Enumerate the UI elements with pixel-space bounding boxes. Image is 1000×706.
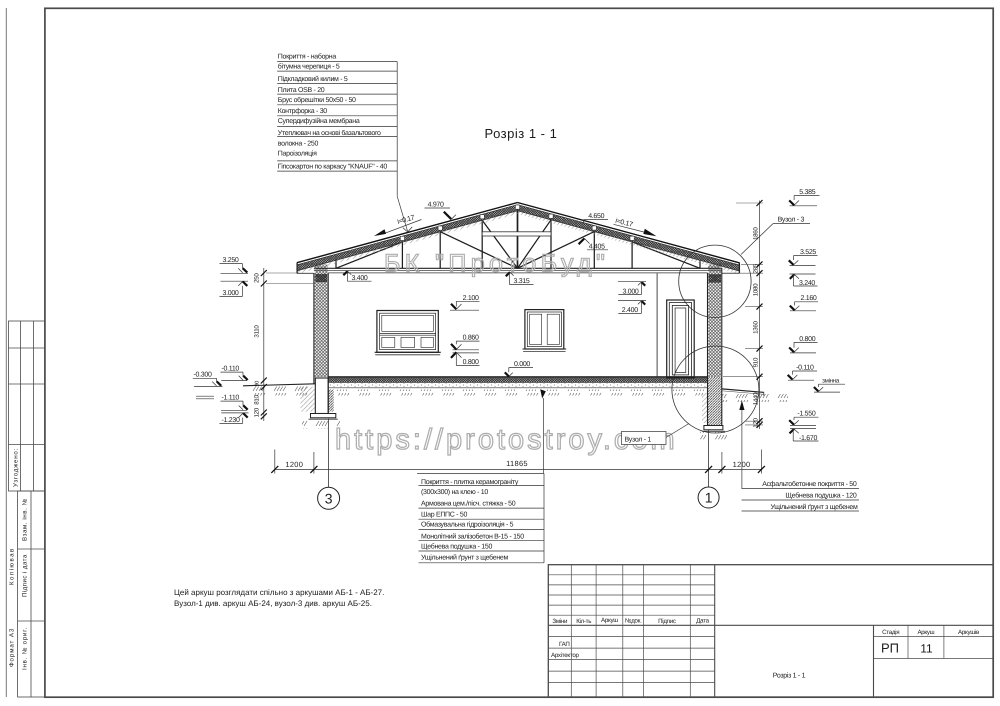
- svg-text:Утеплювач на основі базальтово: Утеплювач на основі базальтового: [278, 129, 381, 137]
- svg-text:Вузол - 3: Вузол - 3: [778, 216, 805, 223]
- svg-text:-1.230: -1.230: [222, 417, 240, 424]
- svg-text:Гіпсокартон по каркасу "KNAUF": Гіпсокартон по каркасу "KNAUF" - 40: [278, 162, 388, 170]
- svg-text:волокна - 250: волокна - 250: [278, 140, 319, 147]
- svg-text:1860: 1860: [753, 227, 760, 240]
- svg-text:Взам. інв. №: Взам. інв. №: [22, 498, 29, 541]
- svg-text:-0.110: -0.110: [222, 366, 240, 373]
- svg-text:3.000: 3.000: [223, 290, 239, 297]
- svg-text:90: 90: [254, 381, 260, 387]
- svg-text:120: 120: [253, 407, 260, 417]
- svg-text:3.250: 3.250: [223, 257, 239, 264]
- svg-text:120: 120: [753, 417, 760, 427]
- svg-text:Щебнева подушка - 150: Щебнева подушка - 150: [421, 543, 492, 551]
- svg-text:Узгоджено:: Узгоджено:: [13, 448, 20, 487]
- svg-text:3110: 3110: [253, 325, 260, 338]
- svg-text:4.650: 4.650: [588, 213, 604, 220]
- svg-text:Інв. № ориг.: Інв. № ориг.: [22, 627, 29, 670]
- svg-text:Формат А3: Формат А3: [9, 628, 16, 667]
- svg-text:3.000: 3.000: [623, 288, 639, 295]
- svg-text:Аркуш: Аркуш: [917, 629, 934, 636]
- svg-text:Покриття - плитка керамограніт: Покриття - плитка керамограніту: [421, 478, 519, 486]
- svg-text:Плита OSB - 20: Плита OSB - 20: [278, 87, 325, 94]
- svg-text:1360: 1360: [753, 320, 760, 333]
- svg-text:Армована цем./пісч. стяжка - 5: Армована цем./пісч. стяжка - 50: [421, 499, 516, 507]
- svg-text:Дата: Дата: [696, 617, 709, 624]
- svg-text:285: 285: [753, 263, 760, 273]
- svg-text:5.385: 5.385: [799, 189, 815, 196]
- svg-text:2.160: 2.160: [801, 295, 817, 302]
- svg-text:Архітектор: Архітектор: [551, 652, 579, 659]
- svg-text:№док.: №док.: [625, 617, 642, 624]
- svg-text:0.800: 0.800: [463, 359, 479, 366]
- svg-text:1080: 1080: [753, 283, 760, 296]
- svg-text:Покриття - наборна: Покриття - наборна: [278, 53, 337, 61]
- svg-text:Розріз 1 - 1: Розріз 1 - 1: [485, 126, 558, 141]
- svg-text:Обмазувальна гідроізоляція - 5: Обмазувальна гідроізоляція - 5: [421, 521, 514, 529]
- svg-text:2.400: 2.400: [622, 307, 638, 314]
- svg-text:Пароізоляція: Пароізоляція: [278, 149, 317, 157]
- svg-text:Щебнева подушка - 120: Щебнева подушка - 120: [785, 492, 856, 500]
- svg-text:Зміни: Зміни: [552, 618, 568, 625]
- svg-text:Ущільнений ґрунт з щебенем: Ущільнений ґрунт з щебенем: [421, 554, 509, 562]
- svg-text:1200: 1200: [285, 460, 303, 469]
- svg-text:4.405: 4.405: [589, 243, 605, 250]
- svg-text:11: 11: [920, 642, 933, 656]
- svg-text:-0.300: -0.300: [194, 372, 212, 379]
- svg-text:змінна: змінна: [822, 378, 840, 385]
- svg-text:11865: 11865: [506, 459, 528, 468]
- svg-text:ГАП: ГАП: [559, 641, 570, 648]
- svg-text:Контрфорка - 30: Контрфорка - 30: [278, 107, 328, 115]
- svg-text:3.525: 3.525: [800, 249, 816, 256]
- svg-text:Ущільнений ґрунт з щебенем: Ущільнений ґрунт з щебенем: [770, 503, 858, 511]
- svg-text:-1.110: -1.110: [222, 395, 240, 402]
- svg-text:Розріз 1 - 1: Розріз 1 - 1: [773, 672, 806, 680]
- svg-text:0.800: 0.800: [799, 336, 815, 343]
- svg-text:910: 910: [753, 357, 760, 367]
- svg-text:4.970: 4.970: [428, 201, 444, 208]
- svg-text:3.400: 3.400: [352, 275, 368, 282]
- svg-text:БК "ПротоБуд": БК "ПротоБуд": [384, 250, 609, 278]
- svg-text:Асфальтобетонне покриття - 50: Асфальтобетонне покриття - 50: [762, 480, 857, 488]
- svg-text:-1.670: -1.670: [799, 435, 817, 442]
- svg-text:-1.550: -1.550: [797, 411, 815, 418]
- svg-text:1: 1: [705, 490, 713, 506]
- svg-text:Кіл-ть: Кіл-ть: [576, 618, 591, 625]
- svg-text:Вузол-1 див. аркуш АБ-24, вузо: Вузол-1 див. аркуш АБ-24, вузол-3 див. а…: [174, 599, 372, 608]
- svg-text:3.315: 3.315: [514, 278, 530, 285]
- svg-text:0.860: 0.860: [463, 335, 479, 342]
- svg-text:Брус обрешітки 50х50 - 50: Брус обрешітки 50х50 - 50: [278, 96, 356, 104]
- svg-text:Підпис: Підпис: [658, 618, 676, 625]
- svg-text:Стадія: Стадія: [882, 629, 899, 636]
- svg-text:Шар ЕППС - 50: Шар ЕППС - 50: [421, 512, 467, 519]
- svg-text:Аркуш: Аркуш: [601, 617, 618, 624]
- svg-text:РП: РП: [881, 641, 899, 656]
- svg-text:0.000: 0.000: [514, 361, 530, 368]
- svg-text:Супердифузійна мембрана: Супердифузійна мембрана: [278, 117, 360, 125]
- svg-text:1440: 1440: [753, 392, 760, 405]
- svg-text:Цей аркуш розглядати спільно з: Цей аркуш розглядати спільно з аркушами …: [174, 588, 384, 597]
- svg-text:250: 250: [253, 273, 260, 283]
- svg-text:-0.110: -0.110: [796, 365, 814, 372]
- svg-text:Підпис і дата: Підпис і дата: [22, 554, 29, 597]
- svg-text:Підкладковий килим - 5: Підкладковий килим - 5: [278, 75, 348, 83]
- svg-text:3.240: 3.240: [799, 280, 815, 287]
- svg-text:бітумна черепиця - 5: бітумна черепиця - 5: [278, 63, 340, 71]
- svg-text:Монолітний залізобетон В-15 -: Монолітний залізобетон В-15 - 150: [421, 533, 524, 541]
- svg-text:(300х300) на клею - 10: (300х300) на клею - 10: [421, 488, 488, 496]
- svg-text:3: 3: [325, 490, 333, 506]
- svg-text:810: 810: [253, 394, 260, 404]
- svg-text:Аркушів: Аркушів: [958, 629, 980, 636]
- svg-text:Вузол - 1: Вузол - 1: [625, 436, 652, 443]
